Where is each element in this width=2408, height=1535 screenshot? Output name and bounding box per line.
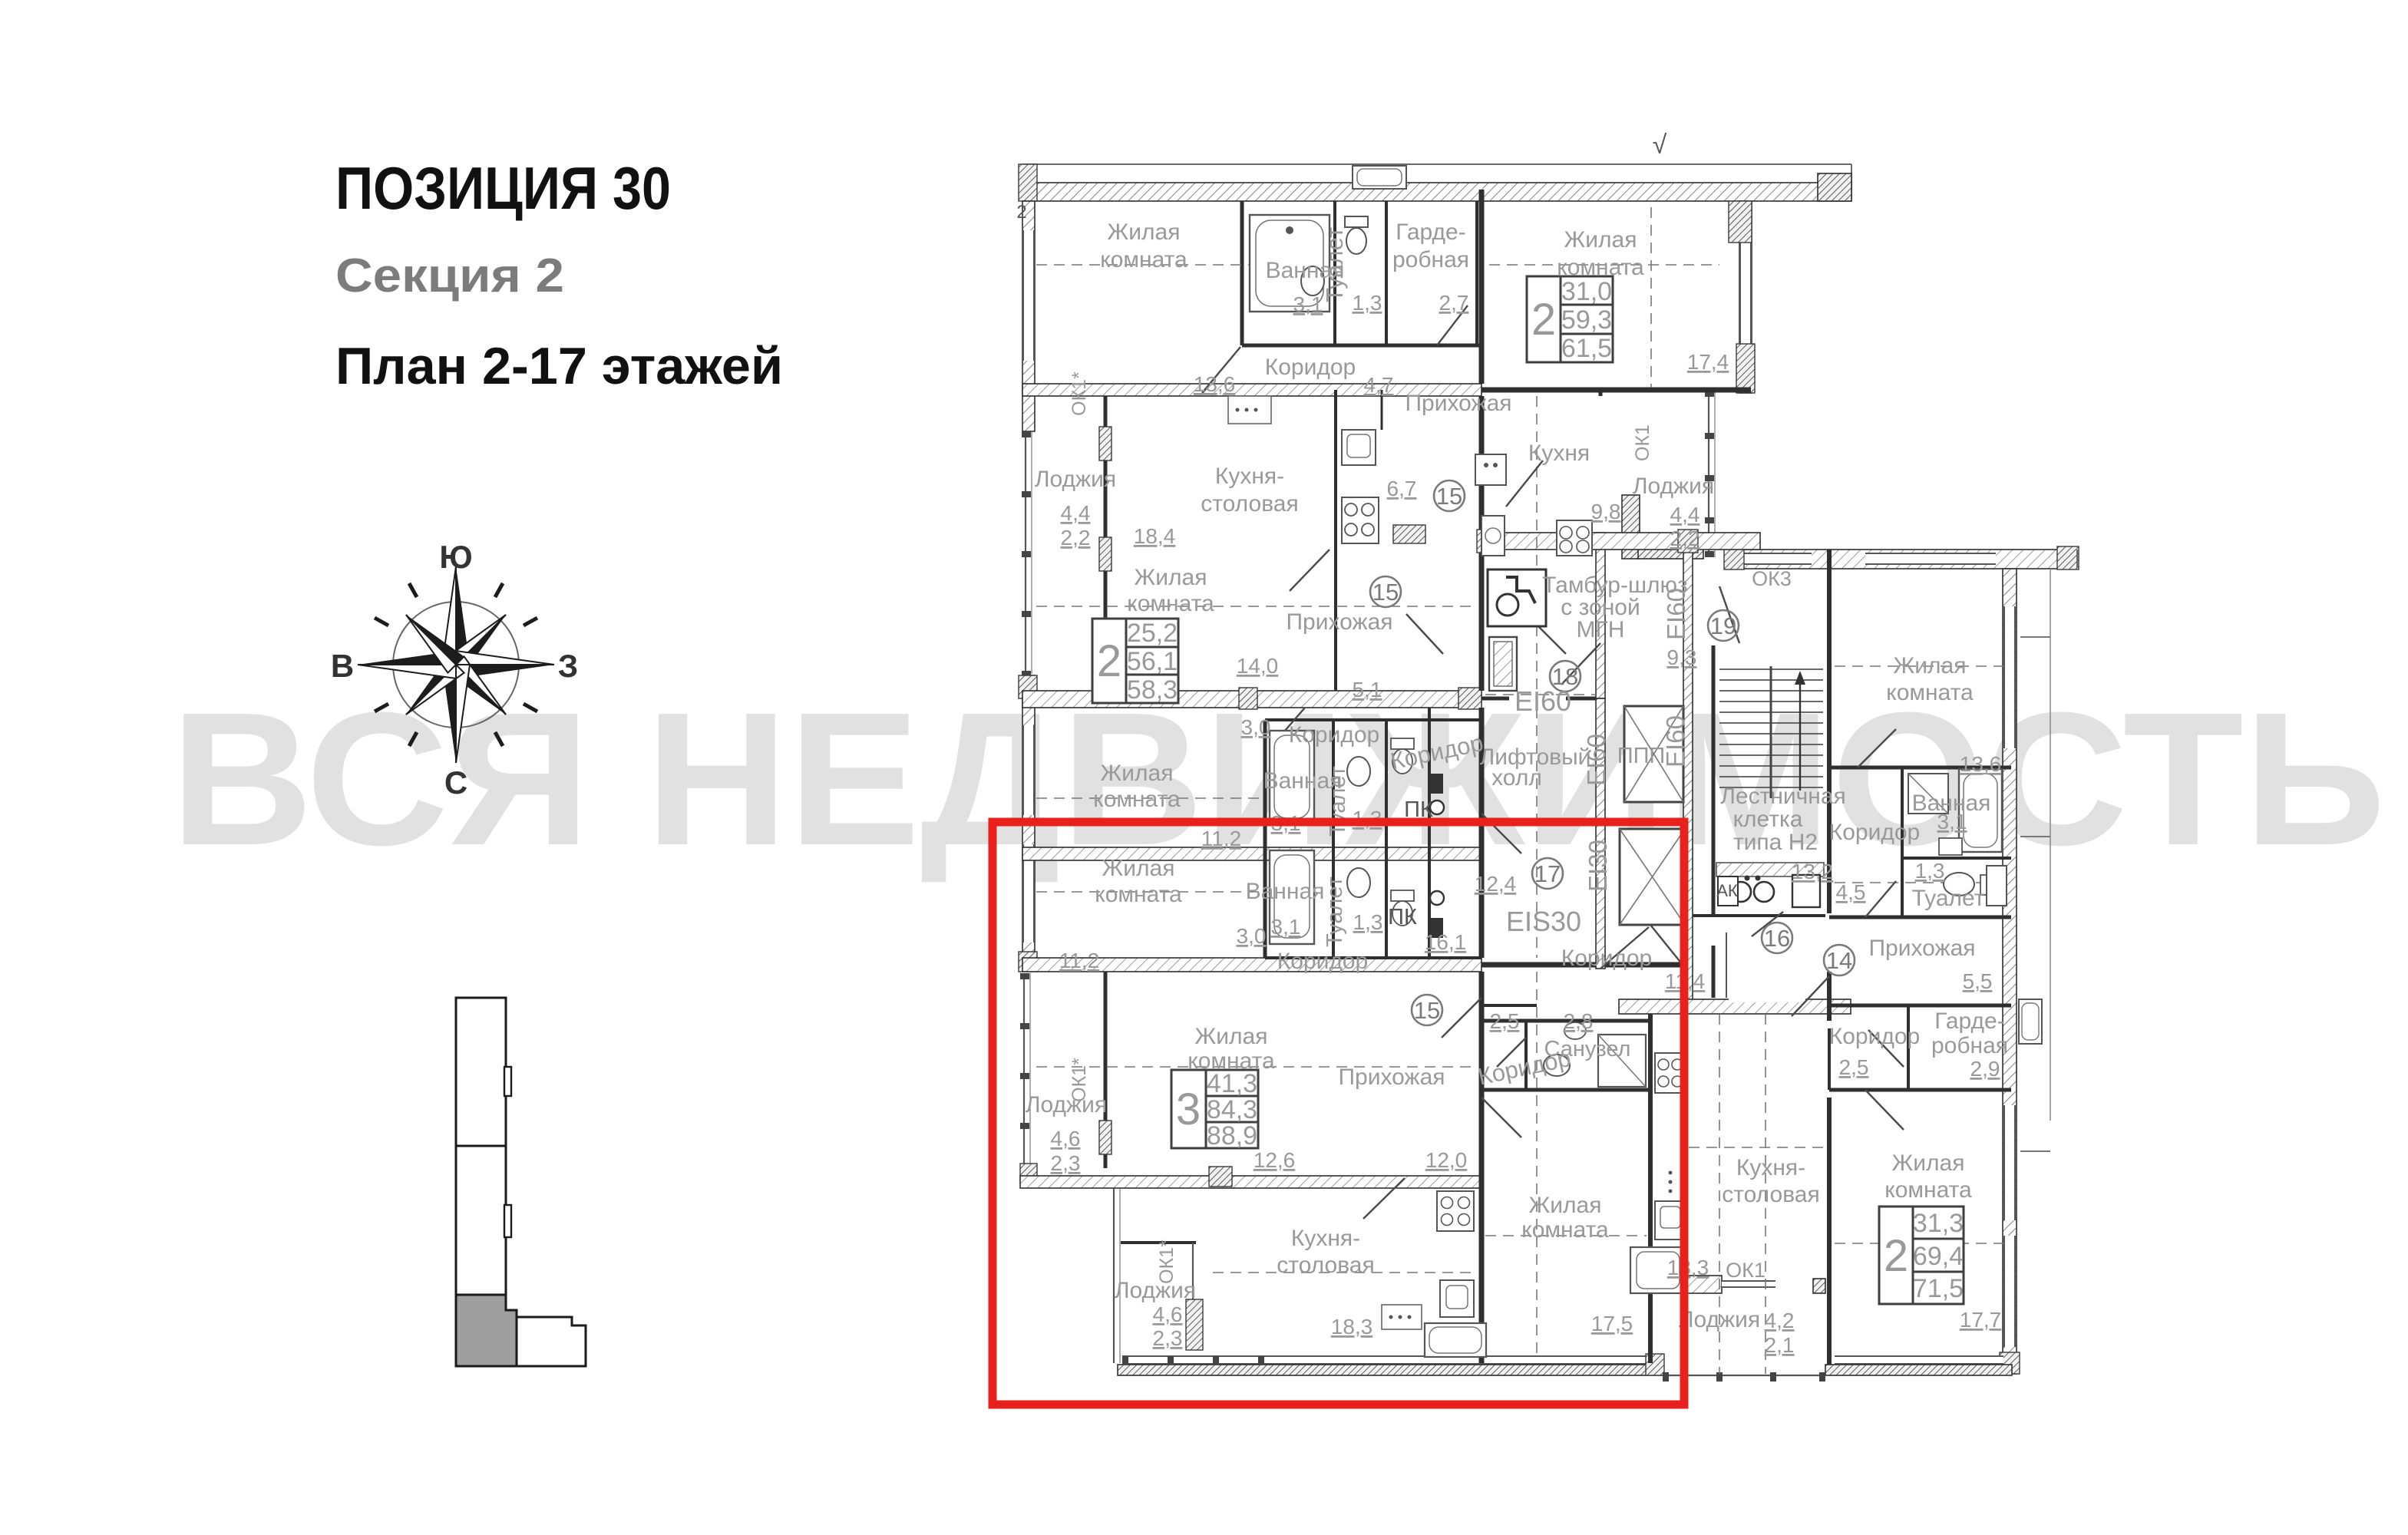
svg-text:1,3: 1,3 bbox=[1915, 859, 1945, 883]
svg-text:Коридор: Коридор bbox=[1829, 820, 1920, 845]
svg-text:комната: комната bbox=[1521, 1217, 1609, 1243]
svg-text:В: В bbox=[331, 648, 354, 684]
svg-text:ОК1: ОК1 bbox=[1632, 424, 1653, 461]
svg-text:2,9: 2,9 bbox=[1970, 1057, 2000, 1081]
svg-text:2,3: 2,3 bbox=[1051, 1151, 1081, 1175]
svg-text:Кухня-: Кухня- bbox=[1215, 464, 1284, 489]
svg-text:Коридор: Коридор bbox=[1289, 722, 1379, 748]
svg-text:15: 15 bbox=[1372, 579, 1399, 606]
svg-text:2: 2 bbox=[1016, 202, 1026, 223]
svg-text:Коридор: Коридор bbox=[1475, 1045, 1573, 1091]
svg-text:4,6: 4,6 bbox=[1153, 1302, 1183, 1326]
svg-text:13,2: 13,2 bbox=[1792, 860, 1834, 883]
svg-text:З: З bbox=[558, 648, 578, 684]
svg-text:ПОЗИЦИЯ 30: ПОЗИЦИЯ 30 bbox=[335, 154, 671, 222]
svg-text:3,1: 3,1 bbox=[1937, 810, 1967, 834]
svg-text:88,9: 88,9 bbox=[1207, 1121, 1257, 1150]
svg-text:2,1: 2,1 bbox=[1765, 1333, 1795, 1357]
svg-text:комната: комната bbox=[1095, 882, 1182, 907]
svg-text:Гарде-: Гарде- bbox=[1934, 1008, 2004, 1034]
svg-text:Лоджия: Лоджия bbox=[1026, 1092, 1107, 1117]
svg-text:МГН: МГН bbox=[1577, 617, 1625, 642]
svg-text:EI60: EI60 bbox=[1582, 734, 1610, 786]
svg-text:Жилая: Жилая bbox=[1894, 653, 1967, 678]
svg-text:2,8: 2,8 bbox=[1564, 1009, 1594, 1033]
svg-text:ОК1*: ОК1* bbox=[1069, 1058, 1090, 1102]
svg-text:69,4: 69,4 bbox=[1913, 1242, 1964, 1271]
svg-text:3,0: 3,0 bbox=[1241, 715, 1271, 739]
svg-text:19: 19 bbox=[1710, 612, 1736, 639]
svg-text:ОК1: ОК1 bbox=[1726, 1259, 1766, 1282]
svg-text:2,7: 2,7 bbox=[1439, 291, 1469, 315]
svg-text:Коридор: Коридор bbox=[1277, 949, 1368, 974]
svg-text:9,8: 9,8 bbox=[1591, 500, 1621, 523]
svg-text:комната: комната bbox=[1093, 787, 1181, 812]
svg-text:16: 16 bbox=[1764, 925, 1790, 952]
svg-text:EI30: EI30 bbox=[1584, 840, 1612, 892]
svg-text:Жилая: Жилая bbox=[1102, 856, 1175, 881]
svg-text:84,3: 84,3 bbox=[1207, 1095, 1257, 1124]
svg-text:71,5: 71,5 bbox=[1913, 1274, 1964, 1303]
svg-text:18,4: 18,4 bbox=[1134, 524, 1176, 548]
svg-text:2,5: 2,5 bbox=[1839, 1055, 1869, 1079]
svg-text:18,3: 18,3 bbox=[1331, 1315, 1373, 1339]
svg-text:2,2: 2,2 bbox=[1670, 527, 1700, 550]
svg-text:ОК1*: ОК1* bbox=[1069, 371, 1090, 416]
svg-text:17,7: 17,7 bbox=[1960, 1308, 2002, 1332]
svg-text:2,3: 2,3 bbox=[1153, 1326, 1183, 1350]
svg-text:столовая: столовая bbox=[1277, 1253, 1375, 1278]
svg-text:холл: холл bbox=[1491, 765, 1542, 791]
svg-text:Коридор: Коридор bbox=[1829, 1024, 1920, 1049]
svg-text:12,6: 12,6 bbox=[1254, 1148, 1296, 1172]
svg-text:2: 2 bbox=[1884, 1231, 1908, 1281]
svg-text:4,4: 4,4 bbox=[1670, 503, 1700, 527]
svg-text:ОК3: ОК3 bbox=[1752, 567, 1792, 590]
svg-text:41,3: 41,3 bbox=[1207, 1069, 1257, 1098]
svg-text:61,5: 61,5 bbox=[1561, 334, 1612, 363]
svg-text:ПК: ПК bbox=[1388, 905, 1417, 929]
svg-text:58,3: 58,3 bbox=[1127, 675, 1178, 705]
svg-text:С: С bbox=[444, 764, 467, 801]
svg-text:EI60: EI60 bbox=[1514, 685, 1571, 717]
svg-text:столовая: столовая bbox=[1722, 1182, 1820, 1207]
svg-text:1,3: 1,3 bbox=[1353, 910, 1383, 934]
svg-text:14,0: 14,0 bbox=[1237, 654, 1279, 678]
svg-text:56,1: 56,1 bbox=[1127, 647, 1178, 676]
svg-text:комната: комната bbox=[1886, 680, 1974, 705]
svg-text:Жилая: Жилая bbox=[1564, 227, 1637, 253]
svg-text:EI60: EI60 bbox=[1661, 715, 1690, 767]
svg-text:31,0: 31,0 bbox=[1561, 277, 1612, 306]
svg-text:Кухня-: Кухня- bbox=[1291, 1226, 1360, 1251]
svg-text:Лоджия: Лоджия bbox=[1679, 1307, 1760, 1332]
svg-text:31,3: 31,3 bbox=[1913, 1209, 1964, 1238]
svg-text:59,3: 59,3 bbox=[1561, 305, 1612, 335]
svg-text:2: 2 bbox=[1531, 295, 1556, 345]
svg-text:17,5: 17,5 bbox=[1591, 1312, 1633, 1335]
svg-text:Кухня-: Кухня- bbox=[1736, 1155, 1805, 1180]
svg-text:1,3: 1,3 bbox=[1353, 291, 1382, 315]
svg-text:4,4: 4,4 bbox=[1061, 501, 1091, 525]
svg-text:Прихожая: Прихожая bbox=[1868, 936, 1975, 961]
svg-text:9,3: 9,3 bbox=[1667, 645, 1697, 669]
svg-text:5,1: 5,1 bbox=[1353, 678, 1382, 701]
svg-text:комната: комната bbox=[1127, 591, 1214, 616]
svg-text:Туалет: Туалет bbox=[1323, 876, 1347, 947]
svg-text:15: 15 bbox=[1414, 997, 1440, 1024]
svg-text:4,6: 4,6 bbox=[1051, 1127, 1081, 1150]
svg-text:EI60: EI60 bbox=[1662, 588, 1690, 640]
svg-text:АК: АК bbox=[1716, 881, 1738, 900]
svg-text:5,5: 5,5 bbox=[1963, 969, 1993, 993]
svg-text:типа Н2: типа Н2 bbox=[1733, 830, 1818, 855]
svg-text:Жилая: Жилая bbox=[1195, 1024, 1268, 1049]
svg-text:13,6: 13,6 bbox=[1194, 372, 1236, 396]
svg-text:3,0: 3,0 bbox=[1237, 924, 1267, 948]
svg-text:4,2: 4,2 bbox=[1765, 1309, 1795, 1332]
svg-text:EIS30: EIS30 bbox=[1506, 906, 1581, 937]
svg-text:Ванная: Ванная bbox=[1246, 879, 1325, 904]
svg-text:Прихожая: Прихожая bbox=[1405, 391, 1511, 416]
svg-text:ОК1*: ОК1* bbox=[1156, 1240, 1178, 1284]
svg-text:Секция 2: Секция 2 bbox=[335, 249, 564, 302]
svg-text:3,1: 3,1 bbox=[1271, 915, 1301, 939]
svg-text:17: 17 bbox=[1534, 860, 1561, 887]
svg-text:Кухня: Кухня bbox=[1528, 441, 1590, 466]
svg-text:Туалет: Туалет bbox=[1321, 227, 1348, 302]
svg-text:Жилая: Жилая bbox=[1892, 1150, 1965, 1176]
svg-text:Гарде-: Гарде- bbox=[1396, 220, 1465, 245]
svg-text:клетка: клетка bbox=[1733, 807, 1803, 832]
svg-text:2,5: 2,5 bbox=[1490, 1009, 1520, 1033]
svg-text:Жилая: Жилая bbox=[1108, 220, 1181, 245]
svg-text:16,1: 16,1 bbox=[1425, 930, 1467, 954]
svg-text:Жилая: Жилая bbox=[1135, 565, 1207, 590]
svg-text:Лоджия: Лоджия bbox=[1035, 467, 1116, 492]
svg-text:робная: робная bbox=[1392, 247, 1469, 272]
svg-text:Лоджия: Лоджия bbox=[1115, 1278, 1196, 1303]
svg-text:робная: робная bbox=[1931, 1033, 2008, 1058]
svg-text:столовая: столовая bbox=[1201, 491, 1299, 517]
svg-text:Жилая: Жилая bbox=[1101, 761, 1174, 786]
svg-text:План 2-17 этажей: План 2-17 этажей bbox=[335, 337, 783, 395]
svg-text:Туалет: Туалет bbox=[1912, 886, 1985, 911]
svg-text:Лоджия: Лоджия bbox=[1633, 474, 1714, 499]
svg-text:√: √ bbox=[1653, 130, 1667, 160]
svg-text:12,4: 12,4 bbox=[1475, 872, 1517, 896]
svg-text:4,7: 4,7 bbox=[1364, 373, 1394, 397]
svg-text:комната: комната bbox=[1884, 1177, 1972, 1203]
svg-text:Лестничная: Лестничная bbox=[1720, 784, 1846, 809]
svg-text:Ю: Ю bbox=[439, 539, 472, 575]
svg-text:Коридор: Коридор bbox=[1561, 946, 1652, 971]
svg-text:14: 14 bbox=[1826, 947, 1852, 974]
svg-text:2: 2 bbox=[1097, 636, 1121, 686]
svg-text:25,2: 25,2 bbox=[1127, 619, 1178, 648]
svg-text:4,5: 4,5 bbox=[1836, 880, 1866, 904]
svg-text:2,2: 2,2 bbox=[1061, 526, 1091, 550]
svg-text:Прихожая: Прихожая bbox=[1338, 1065, 1445, 1090]
svg-text:13,6: 13,6 bbox=[1960, 752, 2002, 776]
svg-text:3,1: 3,1 bbox=[1293, 292, 1323, 316]
svg-text:11,2: 11,2 bbox=[1201, 827, 1241, 850]
svg-text:Коридор: Коридор bbox=[1265, 355, 1356, 380]
svg-text:комната: комната bbox=[1100, 247, 1187, 272]
svg-text:11,2: 11,2 bbox=[1059, 949, 1099, 972]
svg-text:15: 15 bbox=[1436, 483, 1462, 510]
svg-text:12,0: 12,0 bbox=[1425, 1148, 1468, 1172]
svg-text:17,4: 17,4 bbox=[1687, 350, 1729, 374]
svg-text:6,7: 6,7 bbox=[1387, 477, 1417, 500]
svg-text:Жилая: Жилая bbox=[1529, 1193, 1602, 1218]
svg-text:Прихожая: Прихожая bbox=[1286, 609, 1392, 635]
svg-text:ППП: ППП bbox=[1617, 744, 1666, 768]
svg-text:3: 3 bbox=[1176, 1084, 1201, 1134]
